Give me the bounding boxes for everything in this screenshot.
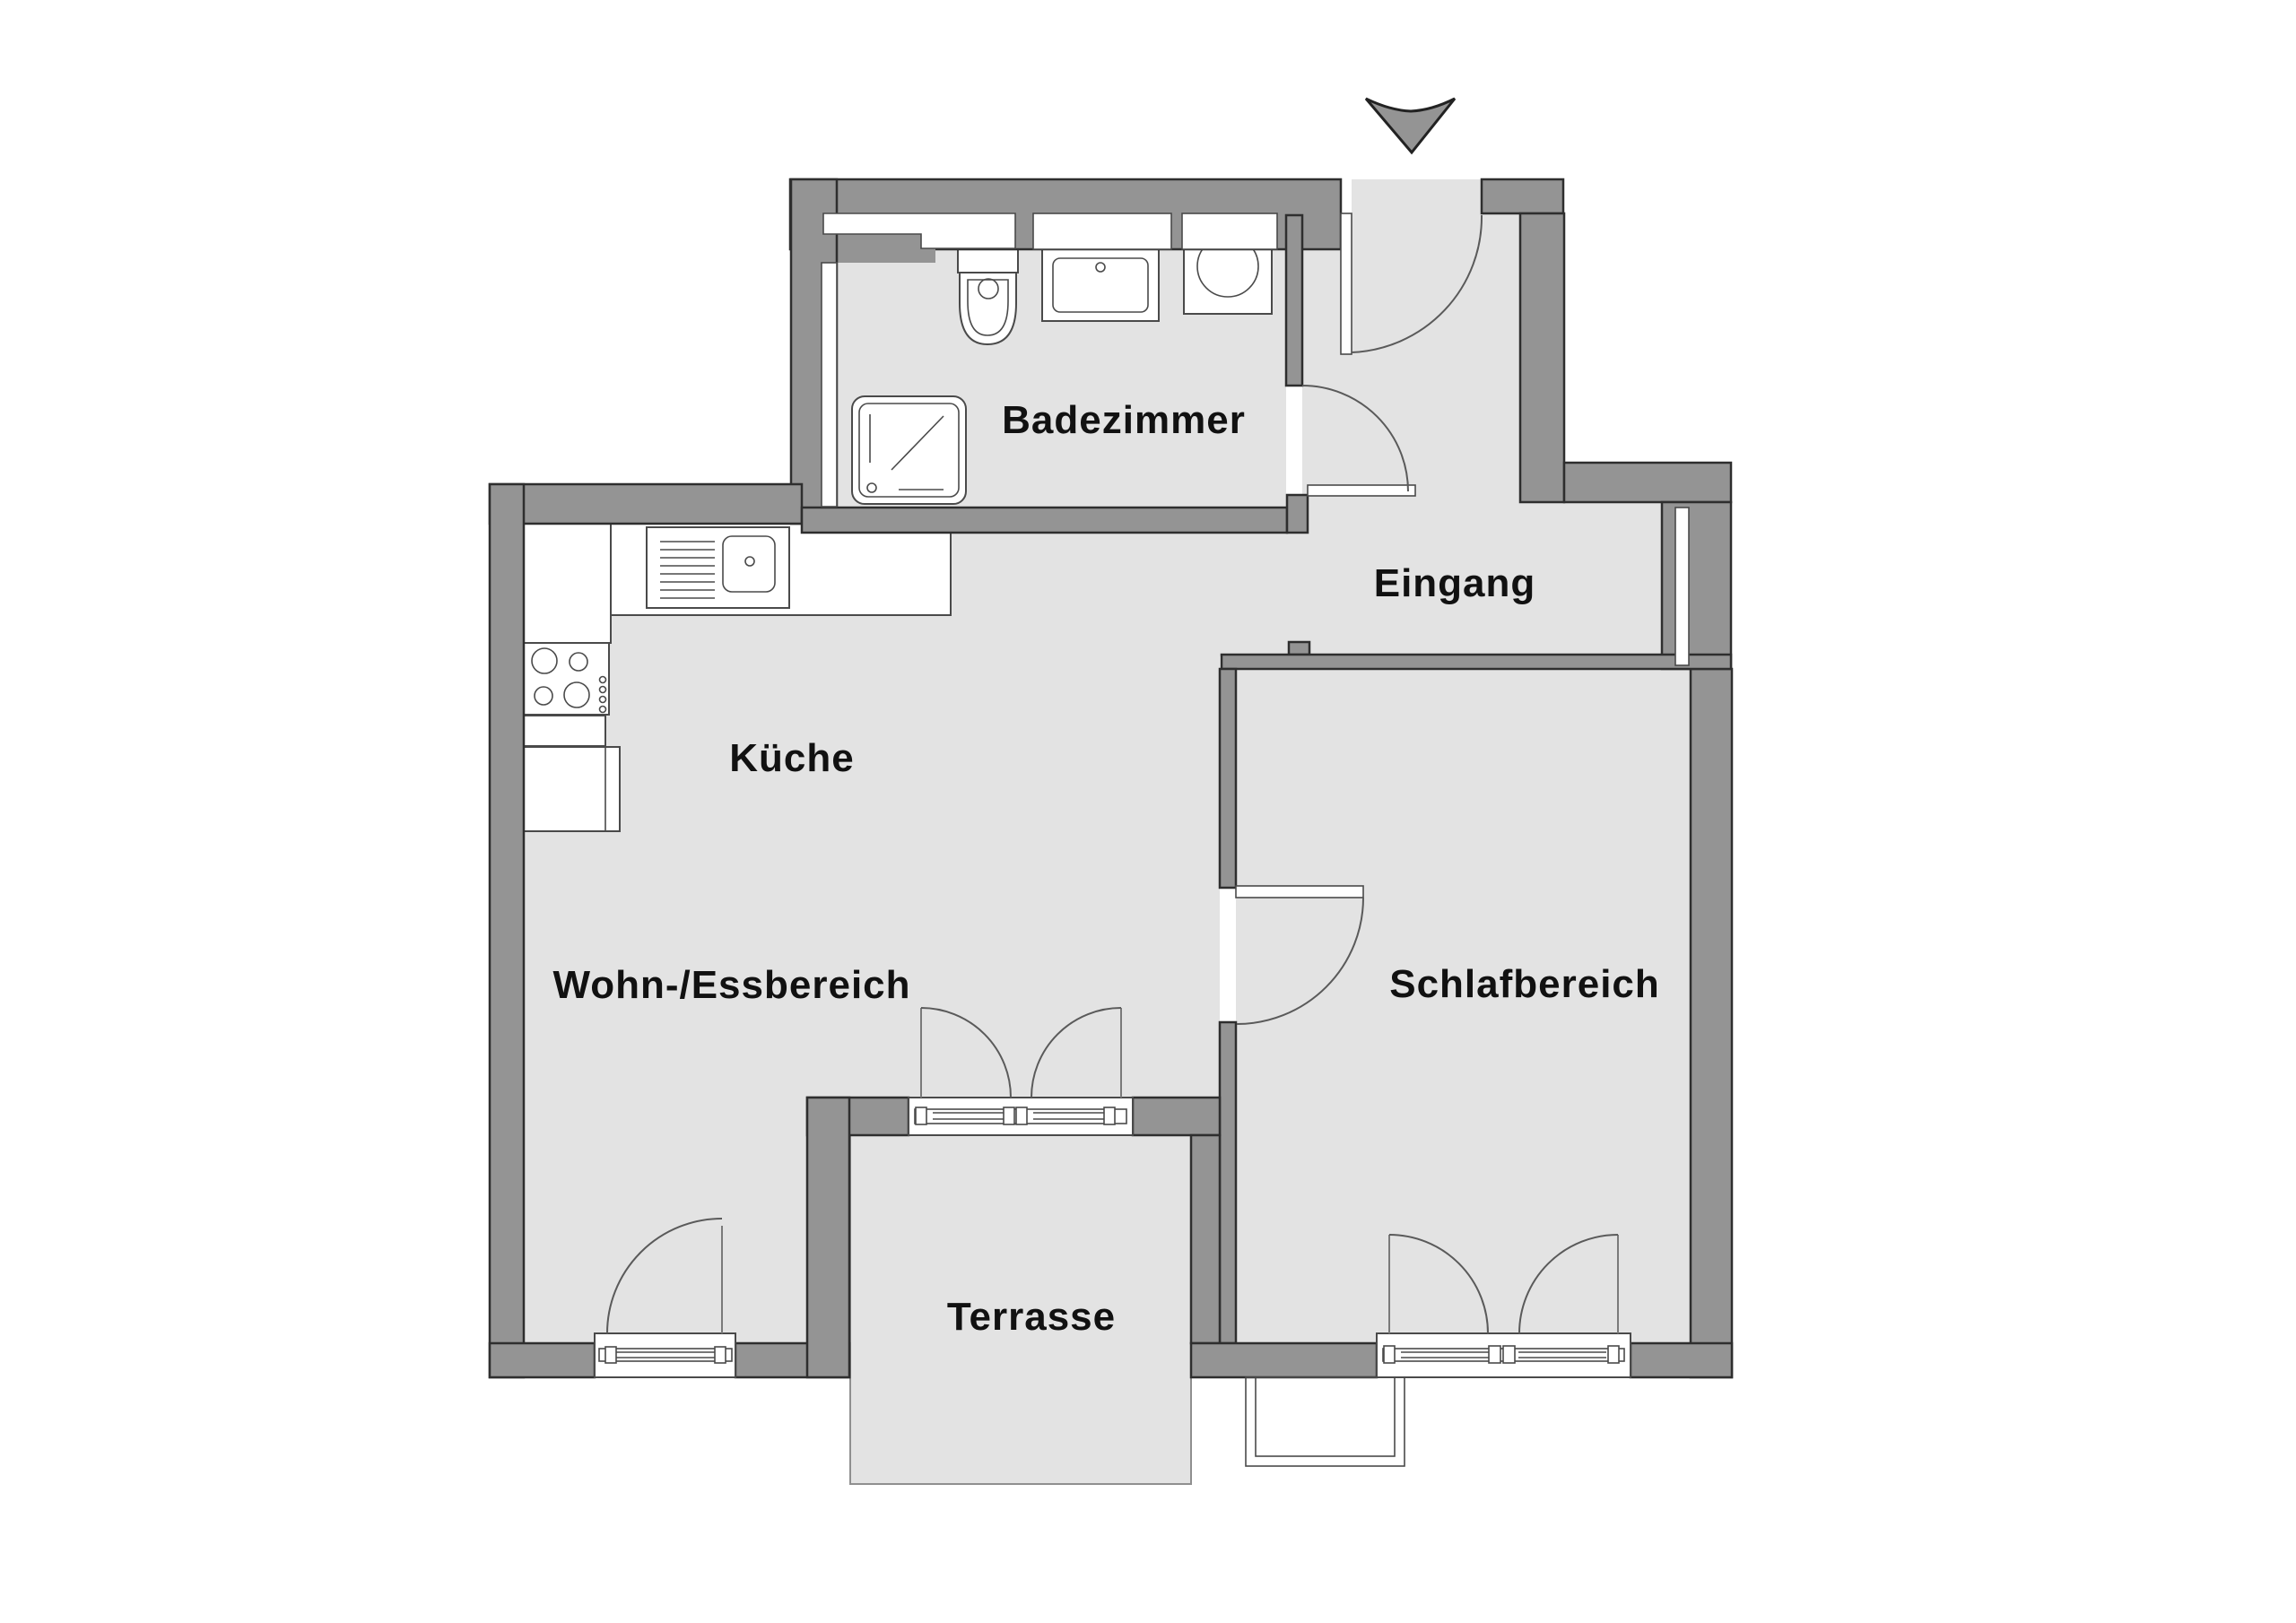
- floor-plan-page: Badezimmer Eingang Küche Wohn-/Essbereic…: [0, 0, 2296, 1623]
- wall-terrace-left-side: [807, 1098, 849, 1377]
- label-eingang: Eingang: [1374, 561, 1536, 605]
- wall-hall-step: [1564, 463, 1731, 502]
- wall-hall-nub: [1289, 642, 1309, 655]
- label-badezimmer: Badezimmer: [1002, 398, 1246, 442]
- wall-bottom-west-left: [490, 1343, 595, 1377]
- wall-hall-sleeping: [1222, 655, 1731, 669]
- wall-sleeping-bottom-right: [1631, 1343, 1732, 1377]
- kitchen-sink-icon: [647, 527, 789, 608]
- washer-niche: [1182, 213, 1277, 249]
- living-floor-upper: [524, 655, 1220, 1099]
- bathroom-window: [822, 263, 837, 507]
- wall-hall-right-lower: [1662, 502, 1731, 669]
- hall-window: [1675, 508, 1689, 665]
- wall-divider-upper: [1220, 669, 1236, 888]
- stove-icon: [524, 643, 609, 715]
- wall-hall-right-upper: [1520, 213, 1564, 502]
- washbasin-icon: [1042, 249, 1159, 321]
- hall-upper-floor: [1302, 213, 1520, 464]
- floor-areas: [524, 179, 1691, 1484]
- wall-divider-lower: [1220, 1022, 1236, 1343]
- toilet-icon: [958, 247, 1018, 344]
- wall-top-deep-part: [836, 247, 935, 263]
- entrance-walkway-floor: [1352, 179, 1482, 217]
- light-shaft: [1246, 1377, 1405, 1466]
- entrance-arrow-icon: [1366, 99, 1455, 152]
- wall-sleeping-bottom-left: [1191, 1343, 1377, 1377]
- label-wohn-essbereich: Wohn-/Essbereich: [552, 963, 910, 1007]
- wall-terrace-right-top: [1133, 1098, 1220, 1135]
- label-schlafbereich: Schlafbereich: [1389, 962, 1660, 1006]
- kitchen-corner-counter: [524, 524, 611, 643]
- kitchen-tall-cabinet: [524, 747, 620, 831]
- shower-icon: [852, 396, 966, 504]
- label-kueche: Küche: [729, 736, 854, 780]
- wall-left-exterior: [490, 484, 524, 1377]
- wall-passage-stub: [1287, 495, 1308, 533]
- wall-terrace-sleeping: [1191, 1135, 1220, 1343]
- living-floor-lower: [524, 1098, 807, 1345]
- wall-bathroom-bottom: [802, 508, 1287, 533]
- floor-plan-drawing: Badezimmer Eingang Küche Wohn-/Essbereic…: [0, 0, 2296, 1623]
- wall-kitchen-top-exterior: [490, 484, 802, 524]
- washbasin-niche: [1033, 213, 1171, 249]
- sleeping-floor: [1236, 669, 1691, 1343]
- wall-bathroom-hall: [1286, 215, 1302, 386]
- wall-top-right-jamb: [1482, 179, 1563, 213]
- kitchen-hall-passage-sill: [1308, 485, 1415, 496]
- wall-sleeping-right: [1691, 669, 1732, 1377]
- label-terrasse: Terrasse: [947, 1295, 1116, 1339]
- kitchen-counter-segment: [524, 716, 605, 746]
